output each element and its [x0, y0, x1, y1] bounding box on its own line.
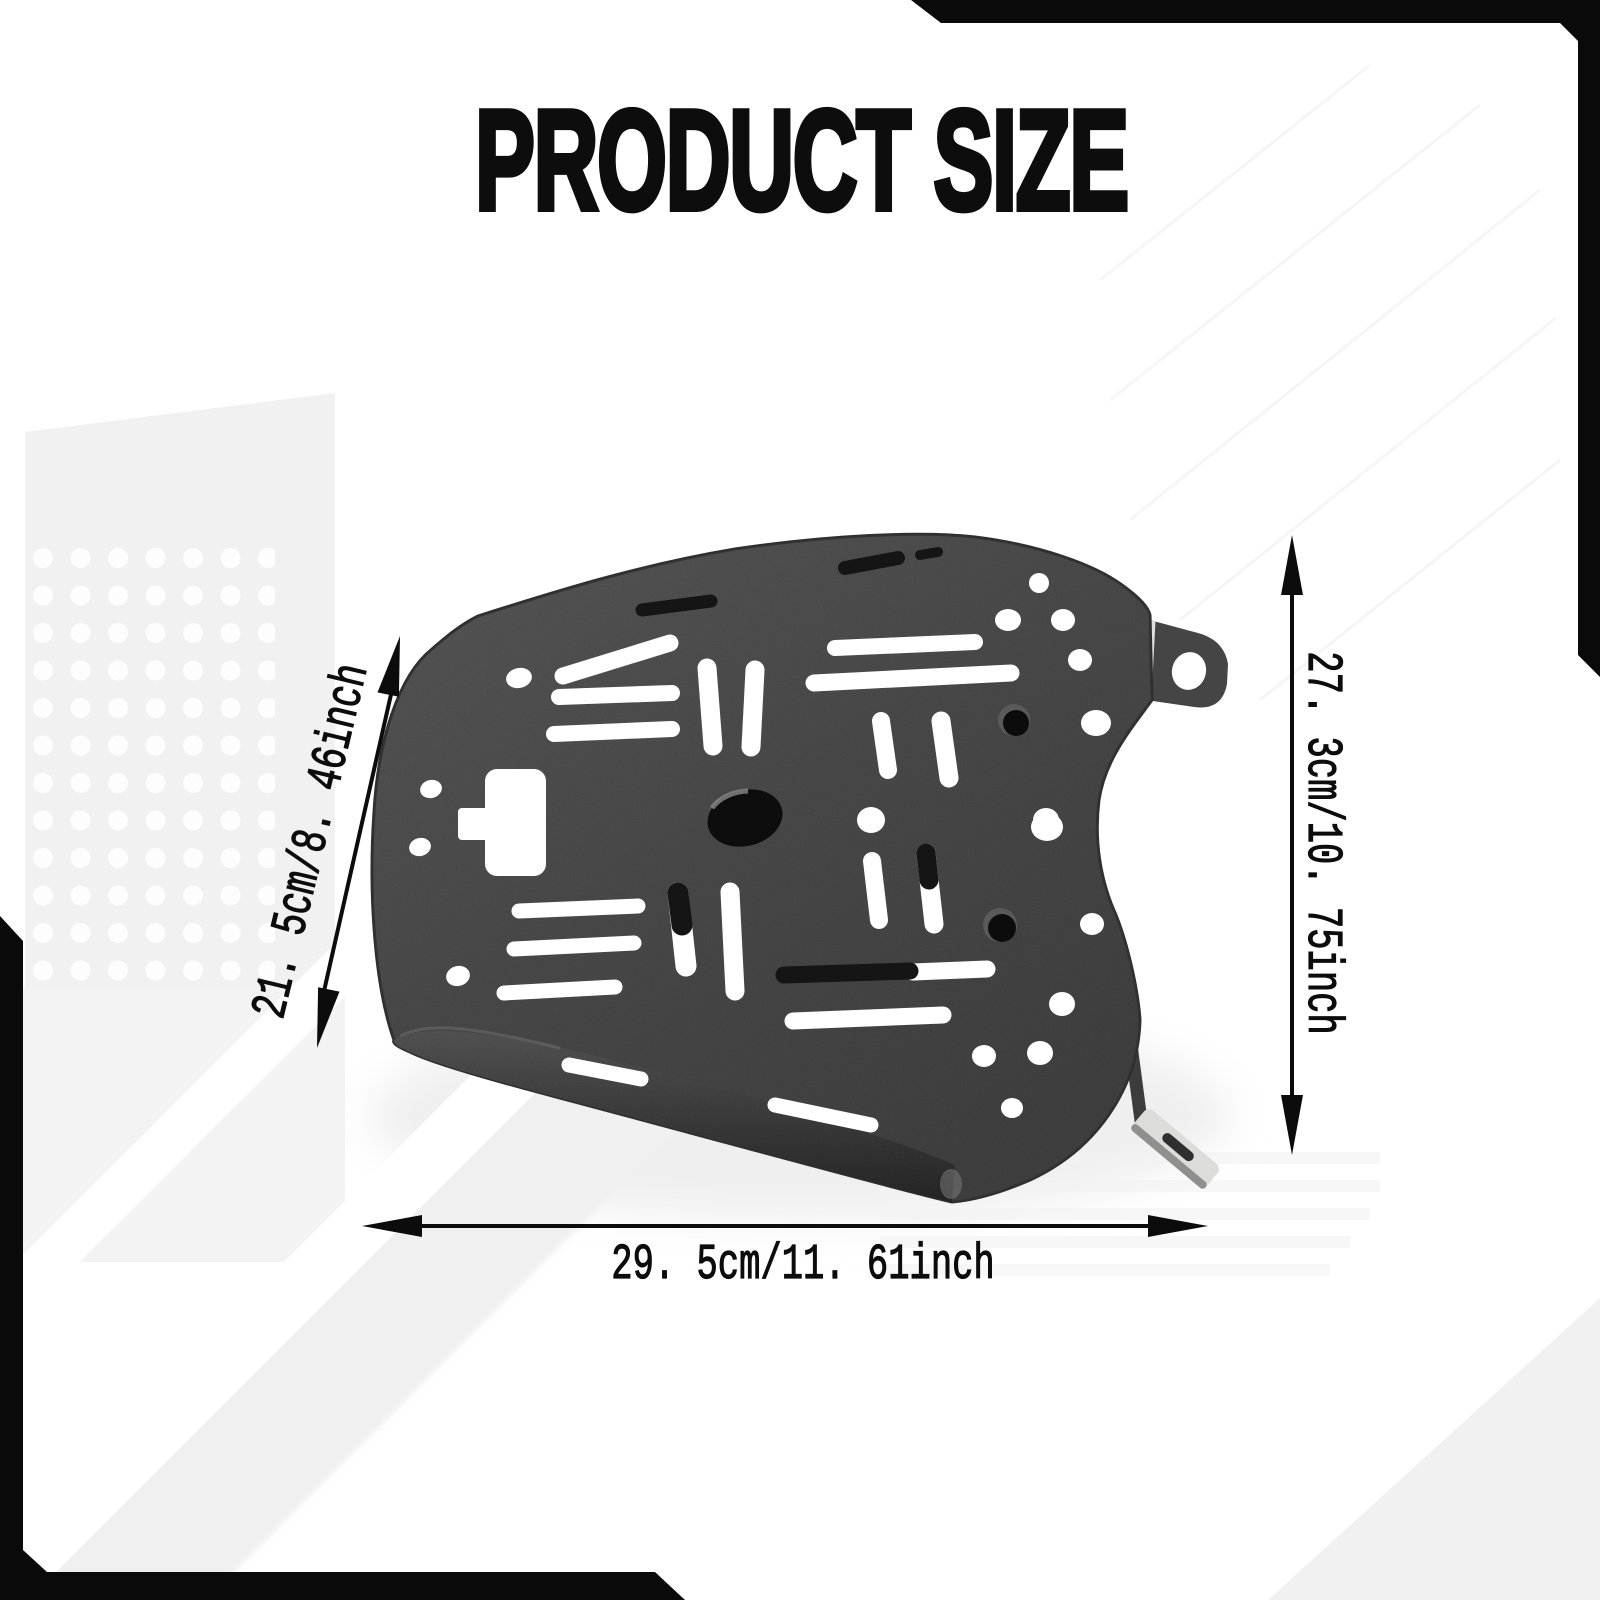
svg-text:PRODUCT SIZE: PRODUCT SIZE	[475, 81, 1128, 240]
svg-text:27. 3cm/10. 75inch: 27. 3cm/10. 75inch	[1293, 651, 1350, 1034]
svg-text:29. 5cm/11. 61inch: 29. 5cm/11. 61inch	[611, 1238, 994, 1295]
